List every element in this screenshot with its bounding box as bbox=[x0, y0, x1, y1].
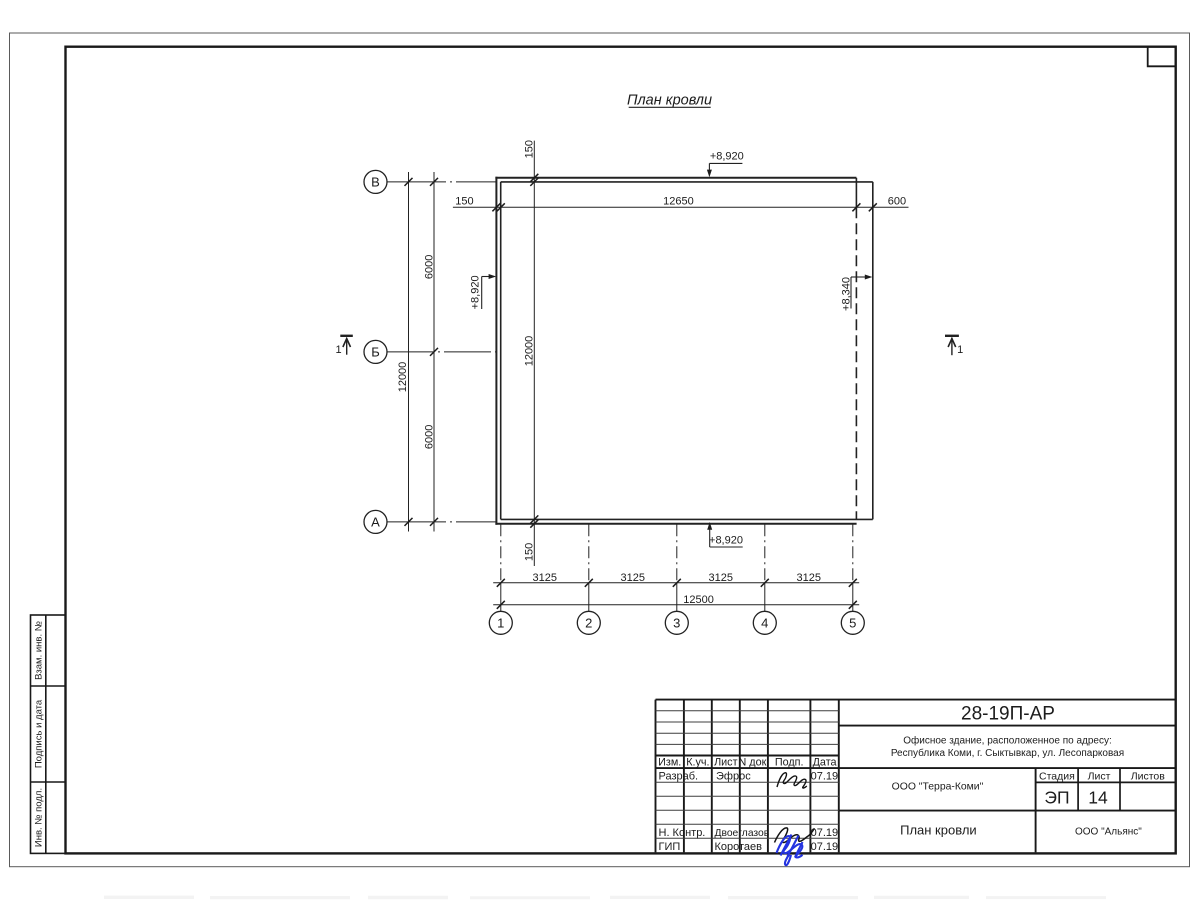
svg-text:6000: 6000 bbox=[423, 425, 435, 449]
svg-text:07.19: 07.19 bbox=[811, 771, 839, 783]
svg-text:+8,920: +8,920 bbox=[710, 150, 744, 162]
svg-text:3125: 3125 bbox=[621, 572, 645, 584]
svg-text:ООО "Терра-Коми": ООО "Терра-Коми" bbox=[892, 781, 984, 792]
svg-text:150: 150 bbox=[524, 140, 536, 158]
svg-text:К.уч.: К.уч. bbox=[686, 757, 709, 769]
svg-text:Коротаев: Коротаев bbox=[715, 841, 763, 853]
svg-text:Двоеглазов: Двоеглазов bbox=[715, 828, 770, 839]
svg-text:07.19: 07.19 bbox=[811, 841, 839, 853]
svg-text:Разраб.: Разраб. bbox=[659, 771, 699, 783]
svg-text:12650: 12650 bbox=[663, 196, 694, 208]
svg-text:ЭП: ЭП bbox=[1044, 787, 1069, 807]
svg-text:В: В bbox=[371, 175, 380, 190]
svg-text:Стадия: Стадия bbox=[1039, 771, 1075, 783]
svg-text:Дата: Дата bbox=[813, 757, 837, 769]
svg-text:3: 3 bbox=[673, 616, 680, 631]
svg-text:Изм.: Изм. bbox=[658, 757, 681, 769]
svg-text:ГИП: ГИП bbox=[659, 841, 681, 853]
svg-text:12000: 12000 bbox=[397, 362, 409, 393]
svg-text:2: 2 bbox=[585, 616, 592, 631]
svg-text:4: 4 bbox=[761, 616, 768, 631]
svg-text:Республика Коми, г. Сыктывкар,: Республика Коми, г. Сыктывкар, ул. Лесоп… bbox=[891, 747, 1124, 759]
svg-text:А: А bbox=[371, 515, 380, 530]
svg-text:1: 1 bbox=[957, 344, 963, 356]
svg-text:Лист: Лист bbox=[714, 757, 738, 769]
svg-text:3125: 3125 bbox=[709, 572, 733, 584]
svg-text:Б: Б bbox=[371, 345, 380, 360]
svg-text:5: 5 bbox=[849, 616, 856, 631]
svg-text:+8,920: +8,920 bbox=[469, 275, 481, 309]
svg-text:1: 1 bbox=[497, 616, 504, 631]
svg-text:150: 150 bbox=[524, 543, 536, 561]
svg-text:28-19П-АР: 28-19П-АР bbox=[961, 704, 1055, 725]
svg-text:6000: 6000 bbox=[423, 255, 435, 279]
svg-text:3125: 3125 bbox=[797, 572, 821, 584]
svg-text:Листов: Листов bbox=[1131, 771, 1166, 783]
svg-text:+8,920: +8,920 bbox=[709, 535, 743, 547]
svg-text:Подп.: Подп. bbox=[775, 757, 804, 769]
svg-text:N док.: N док. bbox=[738, 757, 769, 769]
svg-text:12000: 12000 bbox=[524, 336, 536, 367]
svg-text:150: 150 bbox=[455, 196, 473, 208]
svg-text:Подпись и дата: Подпись и дата bbox=[34, 699, 45, 768]
svg-text:Взам. инв. №: Взам. инв. № bbox=[34, 621, 45, 680]
svg-text:Н. Контр.: Н. Контр. bbox=[659, 827, 706, 839]
svg-text:ООО "Альянс": ООО "Альянс" bbox=[1075, 826, 1142, 837]
svg-text:14: 14 bbox=[1088, 787, 1108, 807]
svg-text:Эфрос: Эфрос bbox=[716, 771, 751, 783]
svg-text:Лист: Лист bbox=[1088, 771, 1111, 783]
svg-text:Офисное здание, расположенное: Офисное здание, расположенное по адресу: bbox=[903, 734, 1112, 746]
svg-text:600: 600 bbox=[888, 196, 906, 208]
svg-text:Инв. № подл.: Инв. № подл. bbox=[34, 788, 45, 847]
svg-text:1: 1 bbox=[336, 344, 342, 356]
svg-text:План кровли: План кровли bbox=[900, 823, 977, 838]
svg-text:3125: 3125 bbox=[533, 572, 557, 584]
svg-text:План кровли: План кровли bbox=[627, 93, 712, 109]
svg-text:12500: 12500 bbox=[683, 594, 714, 606]
